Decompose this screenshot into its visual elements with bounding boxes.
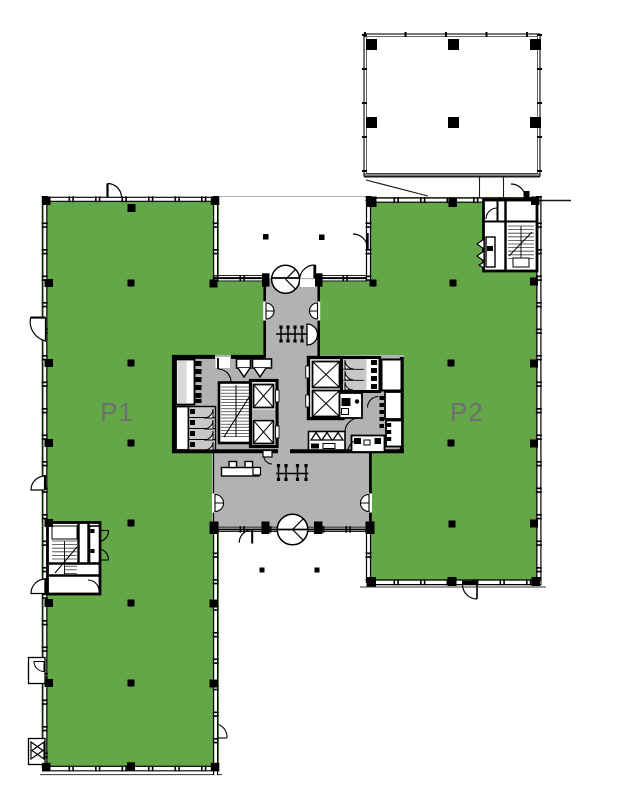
svg-text:P1: P1 [100, 397, 134, 427]
svg-text:P2: P2 [450, 397, 484, 427]
